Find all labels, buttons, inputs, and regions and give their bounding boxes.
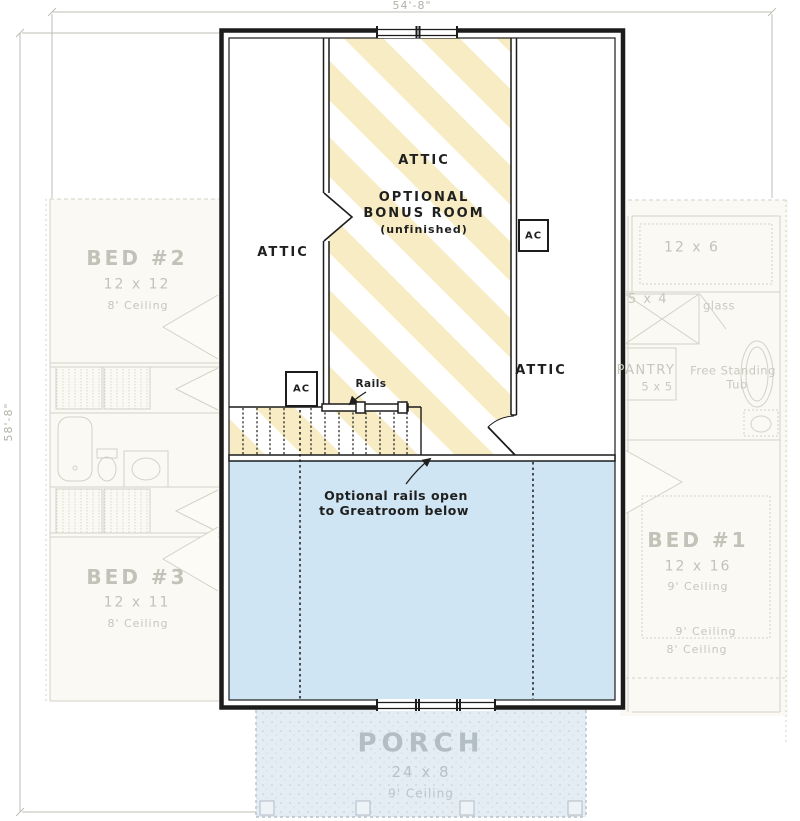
bonus-room-label-2: BONUS ROOM bbox=[363, 207, 484, 221]
bed1-size: 12 x 16 bbox=[665, 559, 732, 574]
bed3-ceiling: 8' Ceiling bbox=[107, 618, 168, 630]
tub-label-2: Tub bbox=[726, 379, 747, 392]
ac-right-label: AC bbox=[525, 231, 542, 242]
ceiling-break-8: 8' Ceiling bbox=[666, 644, 727, 656]
ceiling-break-9: 9' Ceiling bbox=[675, 626, 736, 638]
bonus-room-label-3: (unfinished) bbox=[380, 224, 468, 236]
porch-name: PORCH bbox=[357, 730, 484, 759]
porch-post bbox=[356, 801, 370, 815]
glass-label: glass bbox=[703, 300, 735, 313]
attic-left-label: ATTIC bbox=[257, 246, 308, 260]
shower-size: 5 x 4 bbox=[628, 293, 668, 307]
open-note-line-2: to Greatroom below bbox=[319, 504, 469, 518]
bed3-size: 12 x 11 bbox=[104, 595, 171, 610]
window-top bbox=[377, 26, 457, 38]
right-block-fill bbox=[620, 200, 788, 716]
porch-size: 24 x 8 bbox=[391, 764, 450, 781]
closet-hatch bbox=[56, 489, 102, 533]
rails-label: Rails bbox=[355, 379, 386, 391]
pantry-name: PANTRY bbox=[617, 364, 676, 378]
floor-plan-drawing bbox=[0, 0, 800, 821]
open-note-line-1: Optional rails open bbox=[324, 489, 468, 503]
bonus-room-label-1: OPTIONAL bbox=[379, 191, 470, 205]
ac-left-label: AC bbox=[293, 384, 310, 395]
rail-post bbox=[398, 402, 407, 413]
bed2-name: BED #2 bbox=[86, 247, 187, 269]
attic-center-label: ATTIC bbox=[398, 154, 449, 168]
porch-post bbox=[568, 801, 582, 815]
bed1-ceiling: 9' Ceiling bbox=[667, 581, 728, 593]
closet-hatch bbox=[104, 367, 150, 409]
closet-hatch bbox=[104, 489, 150, 533]
open-edge-rail bbox=[229, 455, 615, 461]
stair-rail bbox=[322, 402, 408, 413]
porch-ceiling: 9' Ceiling bbox=[388, 787, 454, 800]
bed2-size: 12 x 12 bbox=[104, 277, 171, 292]
rail-post bbox=[356, 402, 365, 413]
window-bottom bbox=[377, 699, 495, 711]
height-dimension: 58'-8" bbox=[3, 402, 15, 441]
attic-right-label: ATTIC bbox=[515, 364, 566, 378]
closet-size: 12 x 6 bbox=[664, 240, 720, 255]
tub-label-1: Free Standing bbox=[690, 365, 776, 378]
floor-plan-page: 54'-8" 58'-8" ATTIC ATTIC OPTIONAL BONUS… bbox=[0, 0, 800, 821]
width-dimension: 54'-8" bbox=[392, 0, 431, 12]
pantry-size: 5 x 5 bbox=[641, 381, 672, 394]
bed2-ceiling: 8' Ceiling bbox=[107, 300, 168, 312]
porch-post bbox=[460, 801, 474, 815]
bed1-name: BED #1 bbox=[647, 529, 748, 551]
closet-hatch bbox=[56, 367, 102, 409]
bed3-name: BED #3 bbox=[86, 566, 187, 588]
porch-post bbox=[260, 801, 274, 815]
